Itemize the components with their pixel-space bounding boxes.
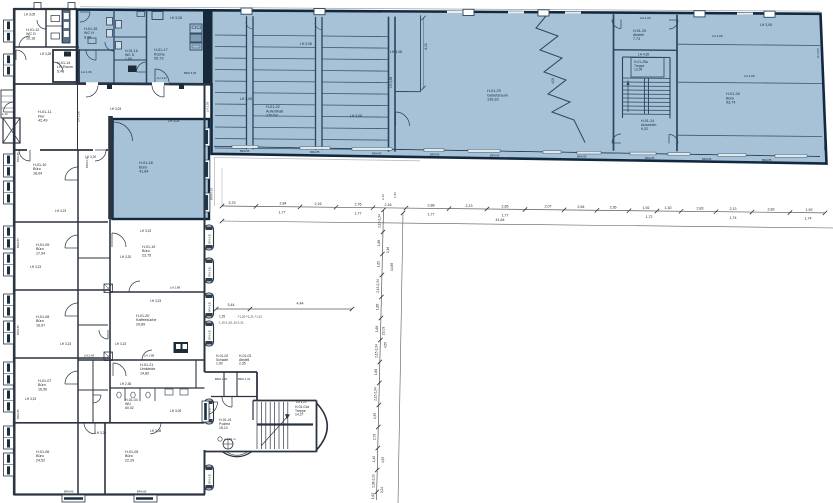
svg-text:LH 2,28: LH 2,28 xyxy=(389,77,393,88)
svg-text:4,55: 4,55 xyxy=(384,342,388,348)
svg-text:LH 1,12: LH 1,12 xyxy=(157,76,167,80)
svg-text:BRH 0,91: BRH 0,91 xyxy=(209,329,212,340)
svg-text:LH 2,88: LH 2,88 xyxy=(170,286,181,290)
svg-text:1,77: 1,77 xyxy=(502,213,509,217)
svg-text:LH 2,36: LH 2,36 xyxy=(120,382,131,386)
svg-text:9,66: 9,66 xyxy=(84,35,91,39)
svg-text:↗1,20↗1,21↗1,21: ↗1,20↗1,21↗1,21 xyxy=(237,315,262,319)
svg-text:LH 3,08: LH 3,08 xyxy=(760,23,772,27)
svg-text:BRH 0,8: BRH 0,8 xyxy=(85,157,89,168)
svg-text:LH 4,06: LH 4,06 xyxy=(81,70,92,74)
svg-text:1,77: 1,77 xyxy=(279,211,286,215)
svg-text:LH 3,23: LH 3,23 xyxy=(140,229,151,233)
svg-text:LH 3,28: LH 3,28 xyxy=(40,52,51,56)
svg-text:LH 2,40: LH 2,40 xyxy=(84,354,95,358)
svg-text:41,84: 41,84 xyxy=(139,170,149,174)
svg-text:4,44: 4,44 xyxy=(297,302,304,306)
svg-text:BRH 85: BRH 85 xyxy=(702,157,712,161)
svg-text:BRH 85: BRH 85 xyxy=(372,151,382,155)
svg-text:2,76: 2,76 xyxy=(355,203,362,207)
svg-text:14,82: 14,82 xyxy=(140,371,149,375)
svg-text:1,66: 1,66 xyxy=(393,192,397,198)
svg-text:LH 3,08: LH 3,08 xyxy=(300,42,312,46)
svg-text:LH 3,08: LH 3,08 xyxy=(390,50,402,54)
svg-text:2,35: 2,35 xyxy=(239,362,246,366)
svg-text:BRH 85: BRH 85 xyxy=(430,152,440,156)
svg-text:2,07: 2,07 xyxy=(545,205,552,209)
svg-text:2,64: 2,64 xyxy=(578,205,585,209)
svg-text:23,03: 23,03 xyxy=(382,327,386,336)
svg-text:LH 3,05: LH 3,05 xyxy=(170,409,181,413)
svg-text:1,40: 1,40 xyxy=(372,456,376,462)
svg-text:23,75: 23,75 xyxy=(142,253,151,257)
svg-text:BRH 85: BRH 85 xyxy=(240,149,250,153)
svg-text:BRH 85: BRH 85 xyxy=(64,490,74,494)
svg-text:2,78: 2,78 xyxy=(373,434,377,440)
svg-text:2,13: 2,13 xyxy=(730,207,737,211)
svg-text:12,04: 12,04 xyxy=(634,68,642,72)
svg-text:BRH 85: BRH 85 xyxy=(16,325,20,335)
svg-text:2,16: 2,16 xyxy=(385,203,392,207)
svg-text:1,62: 1,62 xyxy=(377,261,381,267)
svg-text:16,50: 16,50 xyxy=(38,387,47,391)
svg-text:1,90: 1,90 xyxy=(216,362,223,366)
svg-text:BRH 85: BRH 85 xyxy=(310,150,320,154)
svg-text:LH 3,08: LH 3,08 xyxy=(170,16,182,20)
svg-text:BRH 85: BRH 85 xyxy=(762,158,772,162)
svg-text:42,49: 42,49 xyxy=(38,119,48,123)
svg-text:1,68: 1,68 xyxy=(375,326,379,332)
svg-text:29,89: 29,89 xyxy=(136,322,145,326)
svg-text:1,74: 1,74 xyxy=(730,216,737,220)
svg-text:2,15-2,34: 2,15-2,34 xyxy=(374,387,378,401)
svg-text:BRH 85: BRH 85 xyxy=(16,409,20,419)
svg-text:BRH 85: BRH 85 xyxy=(16,238,20,248)
svg-text:3,44: 3,44 xyxy=(228,303,235,307)
svg-text:LH 3,23: LH 3,23 xyxy=(296,400,307,404)
svg-text:18,04: 18,04 xyxy=(33,171,42,175)
svg-text:24,52: 24,52 xyxy=(36,458,45,462)
svg-text:-1,12: -1,12 xyxy=(1,112,8,116)
svg-text:LH 3,08: LH 3,08 xyxy=(240,97,252,101)
svg-text:2,35: 2,35 xyxy=(373,413,377,419)
svg-text:60,02: 60,02 xyxy=(125,406,134,410)
svg-text:1,72: 1,72 xyxy=(646,215,653,219)
svg-text:BRH 1,34: BRH 1,34 xyxy=(215,377,228,381)
svg-text:41,64: 41,64 xyxy=(496,218,505,222)
svg-text:14,68: 14,68 xyxy=(390,263,394,271)
svg-text:BRH 0,91: BRH 0,91 xyxy=(209,301,212,312)
svg-text:1,92: 1,92 xyxy=(806,208,813,212)
svg-text:LH 3,05: LH 3,05 xyxy=(24,13,35,17)
svg-text:95,73: 95,73 xyxy=(154,57,164,61)
svg-text:1,25: 1,25 xyxy=(219,315,225,319)
svg-text:BRH 0,91: BRH 0,91 xyxy=(209,233,212,244)
svg-text:BRH 0,91: BRH 0,91 xyxy=(209,266,212,277)
svg-text:170,53: 170,53 xyxy=(266,114,278,118)
svg-text:10,16: 10,16 xyxy=(26,36,35,40)
svg-text:7,73: 7,73 xyxy=(633,37,640,41)
svg-text:2,83: 2,83 xyxy=(768,207,775,211)
svg-text:2,16: 2,16 xyxy=(386,247,390,253)
svg-text:1,15-1,2(1,15-1,21: 1,15-1,2(1,15-1,21 xyxy=(219,321,244,325)
svg-text:LH 3,23: LH 3,23 xyxy=(30,265,41,269)
svg-text:17,54: 17,54 xyxy=(36,251,45,255)
svg-text:LH 3,23: LH 3,23 xyxy=(115,342,126,346)
svg-text:1,92: 1,92 xyxy=(643,206,650,210)
svg-text:2,16: 2,16 xyxy=(381,194,385,200)
svg-text:1,77: 1,77 xyxy=(355,212,362,216)
svg-text:1,63: 1,63 xyxy=(371,493,375,499)
svg-text:2,83: 2,83 xyxy=(697,207,704,211)
svg-text:LH 3,08: LH 3,08 xyxy=(77,111,81,122)
svg-text:BRH 85: BRH 85 xyxy=(16,152,20,162)
svg-text:2,13: 2,13 xyxy=(466,204,473,208)
svg-text:93,74: 93,74 xyxy=(726,101,736,105)
svg-text:LH 3,05: LH 3,05 xyxy=(816,48,820,58)
svg-text:1,77: 1,77 xyxy=(428,212,435,216)
svg-text:LH 3,20: LH 3,20 xyxy=(120,255,131,259)
svg-text:1,74: 1,74 xyxy=(805,217,812,221)
svg-text:2,15-2,34: 2,15-2,34 xyxy=(378,214,382,228)
svg-text:BRH 85: BRH 85 xyxy=(577,155,587,159)
svg-text:LH 3,08: LH 3,08 xyxy=(744,74,755,78)
svg-text:LH 3,23: LH 3,23 xyxy=(150,299,161,303)
svg-text:4,55: 4,55 xyxy=(381,457,385,463)
svg-text:LH 3,03: LH 3,03 xyxy=(110,107,121,111)
svg-text:LH 4,35: LH 4,35 xyxy=(638,53,649,57)
svg-text:1,68: 1,68 xyxy=(376,304,380,310)
svg-text:2,88: 2,88 xyxy=(428,203,435,207)
svg-text:BRH 85: BRH 85 xyxy=(645,156,655,160)
svg-text:BRH 0,91: BRH 0,91 xyxy=(823,137,827,150)
svg-text:BRH 0,91: BRH 0,91 xyxy=(210,187,214,200)
svg-text:LH 3,03: LH 3,03 xyxy=(168,119,179,123)
svg-text:2,15-2,34: 2,15-2,34 xyxy=(376,279,380,293)
svg-text:3,75: 3,75 xyxy=(229,201,236,205)
svg-text:2,08-2,29: 2,08-2,29 xyxy=(372,474,376,488)
svg-text:9,32: 9,32 xyxy=(641,127,648,131)
svg-text:1,65: 1,65 xyxy=(125,57,132,61)
svg-text:139,33: 139,33 xyxy=(487,98,499,102)
svg-text:BRH 0,91: BRH 0,91 xyxy=(209,473,212,484)
svg-text:22,29: 22,29 xyxy=(125,458,134,462)
svg-text:4,02: 4,02 xyxy=(424,43,428,50)
svg-text:LH 3,23: LH 3,23 xyxy=(55,209,66,213)
svg-text:LH 3,23: LH 3,23 xyxy=(25,397,36,401)
svg-text:BRH 1,34: BRH 1,34 xyxy=(238,377,251,381)
svg-text:3,24: 3,24 xyxy=(380,487,384,493)
svg-text:15,13: 15,13 xyxy=(219,426,228,430)
svg-text:4,02: 4,02 xyxy=(551,78,555,84)
svg-text:BRH 85: BRH 85 xyxy=(137,490,147,494)
svg-text:2,15-2,34: 2,15-2,34 xyxy=(375,344,379,358)
svg-text:LH 3,25: LH 3,25 xyxy=(95,431,106,435)
svg-text:1,66: 1,66 xyxy=(374,369,378,375)
svg-text:1,30: 1,30 xyxy=(665,206,672,210)
svg-text:BRH 85: BRH 85 xyxy=(490,153,500,157)
svg-text:LH 3,08: LH 3,08 xyxy=(712,34,723,38)
svg-text:5,41: 5,41 xyxy=(57,69,64,73)
svg-text:LH 3,23: LH 3,23 xyxy=(60,342,71,346)
svg-text:BRH 3,05: BRH 3,05 xyxy=(184,71,197,75)
svg-text:LH 4,06: LH 4,06 xyxy=(640,16,651,20)
svg-text:LH 3,03: LH 3,03 xyxy=(206,101,210,112)
svg-text:14,27: 14,27 xyxy=(295,413,304,417)
svg-text:2,84: 2,84 xyxy=(280,202,287,206)
svg-text:⌀ 1,51 m: ⌀ 1,51 m xyxy=(224,437,236,441)
svg-text:1,68: 1,68 xyxy=(377,240,381,246)
svg-text:2,85: 2,85 xyxy=(502,204,509,208)
svg-text:LH 3,08: LH 3,08 xyxy=(350,114,362,118)
svg-text:LH 1,88: LH 1,88 xyxy=(144,354,155,358)
svg-text:16,97: 16,97 xyxy=(36,323,45,327)
svg-text:2,16: 2,16 xyxy=(315,202,322,206)
svg-text:2,36: 2,36 xyxy=(610,206,617,210)
